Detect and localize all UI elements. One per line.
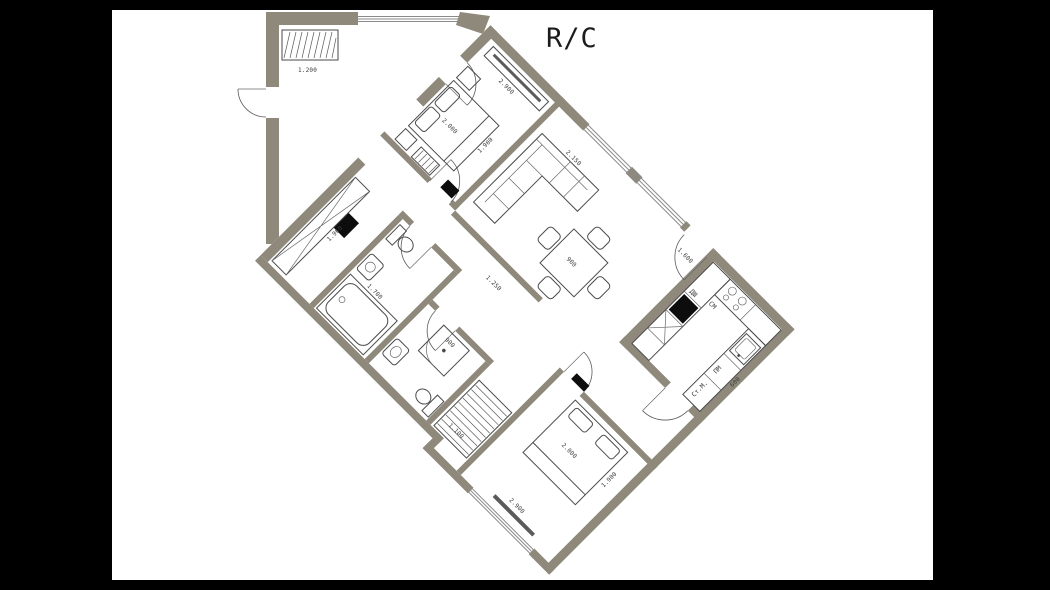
wing-left-wall-upper (266, 12, 279, 87)
porch-door (238, 89, 266, 117)
screenshot-stage: R/C 1.200 (0, 0, 1050, 590)
floor-plan: 1.200 (238, 12, 795, 575)
wing-top-wall (266, 12, 358, 25)
wing-left-wall-lower (266, 118, 279, 244)
wing-window (352, 12, 490, 34)
dim-wing-wardrobe: 1.200 (298, 67, 317, 74)
floor-plan-svg: R/C 1.200 (0, 0, 1050, 590)
floor-level-label: R/C (546, 23, 598, 54)
